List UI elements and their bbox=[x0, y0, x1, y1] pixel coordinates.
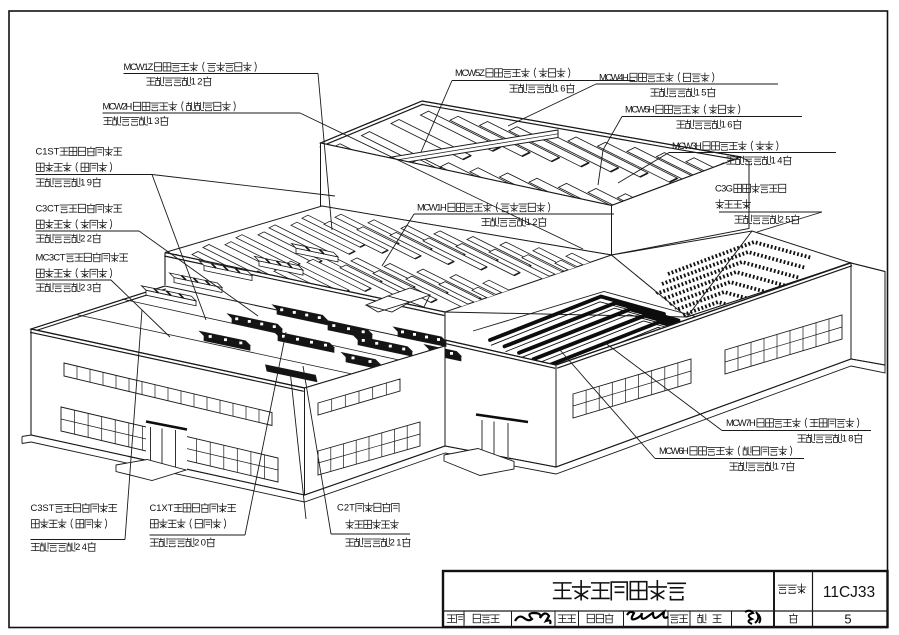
svg-text:MCW5H: MCW5H bbox=[625, 104, 655, 115]
svg-text:C2T: C2T bbox=[337, 502, 355, 513]
svg-text:13: 13 bbox=[148, 115, 160, 126]
svg-text:MCW3H: MCW3H bbox=[672, 140, 702, 151]
svg-text:C3G: C3G bbox=[715, 183, 733, 194]
svg-text:23: 23 bbox=[80, 282, 92, 293]
svg-text:C3CT: C3CT bbox=[36, 203, 60, 214]
svg-text:MCW1H: MCW1H bbox=[417, 202, 447, 213]
svg-text:17: 17 bbox=[774, 461, 786, 472]
svg-text:18: 18 bbox=[842, 433, 854, 444]
svg-text:MCW5Z: MCW5Z bbox=[455, 67, 485, 78]
svg-text:C1XT: C1XT bbox=[150, 502, 174, 513]
svg-text:16: 16 bbox=[721, 119, 733, 130]
svg-text:20: 20 bbox=[194, 537, 206, 548]
svg-text:24: 24 bbox=[75, 541, 87, 552]
svg-text:12: 12 bbox=[191, 76, 203, 87]
svg-text:C3ST: C3ST bbox=[31, 502, 55, 513]
svg-text:MCW2H: MCW2H bbox=[103, 101, 133, 112]
svg-text:21: 21 bbox=[390, 537, 402, 548]
svg-text:MCW1Z: MCW1Z bbox=[124, 61, 154, 72]
svg-text:MCW4H: MCW4H bbox=[599, 72, 629, 83]
svg-text:22: 22 bbox=[80, 233, 92, 244]
svg-text:14: 14 bbox=[771, 155, 783, 166]
svg-text:5: 5 bbox=[844, 612, 851, 627]
svg-text:11CJ33: 11CJ33 bbox=[823, 584, 875, 601]
svg-text:MCW7H: MCW7H bbox=[726, 417, 756, 428]
svg-text:MC3CT: MC3CT bbox=[36, 252, 66, 263]
svg-text:C1ST: C1ST bbox=[36, 146, 60, 157]
svg-text:16: 16 bbox=[554, 83, 566, 94]
svg-text:MCW6H: MCW6H bbox=[659, 445, 689, 456]
svg-text:12: 12 bbox=[526, 216, 538, 227]
svg-text:15: 15 bbox=[695, 87, 707, 98]
svg-text:25: 25 bbox=[779, 214, 791, 225]
svg-text:19: 19 bbox=[80, 177, 92, 188]
